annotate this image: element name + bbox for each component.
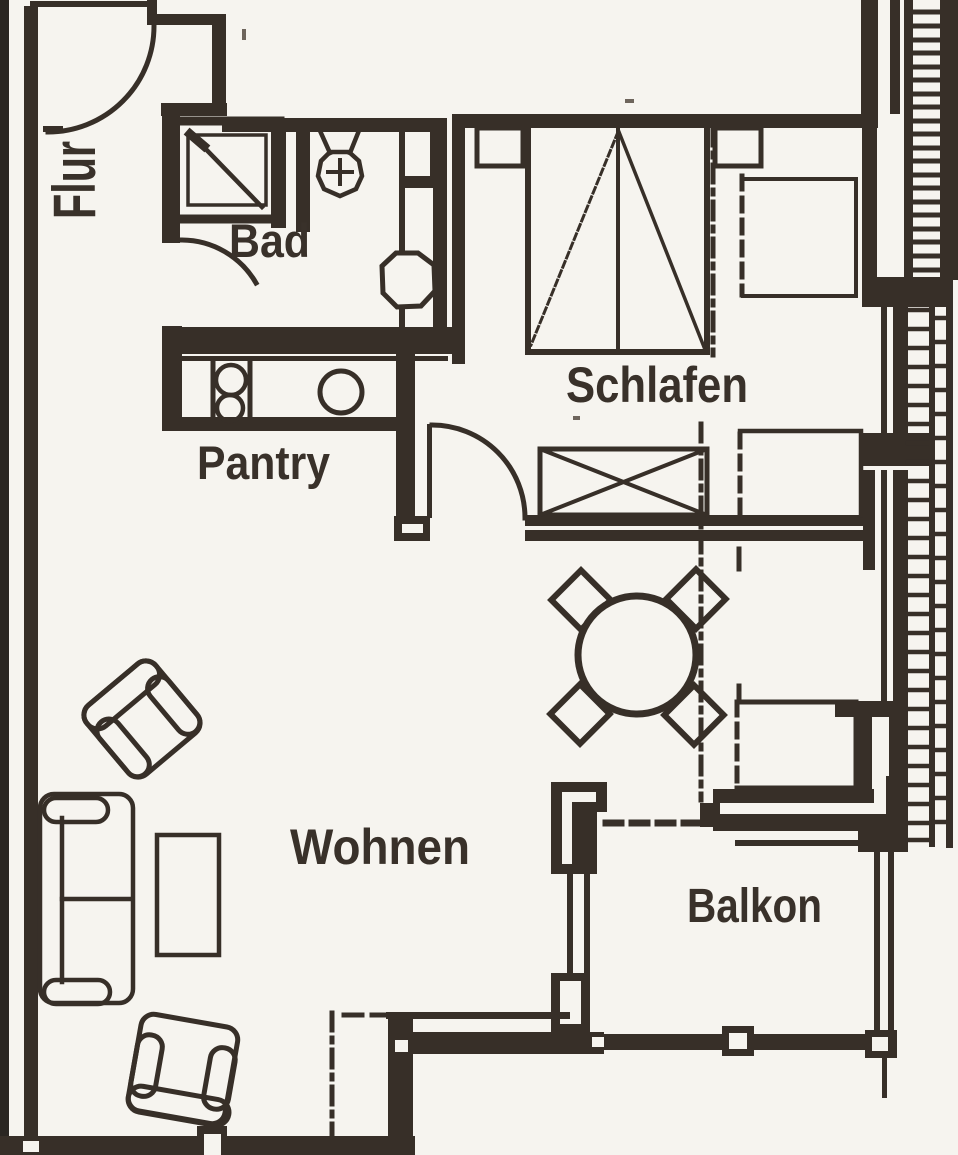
svg-text:Pantry: Pantry (197, 436, 330, 489)
svg-text:Schlafen: Schlafen (566, 357, 748, 413)
svg-text:Flur: Flur (41, 141, 108, 219)
svg-text:Balkon: Balkon (687, 880, 822, 933)
svg-text:Bad: Bad (229, 214, 310, 267)
svg-text:Wohnen: Wohnen (290, 819, 470, 875)
